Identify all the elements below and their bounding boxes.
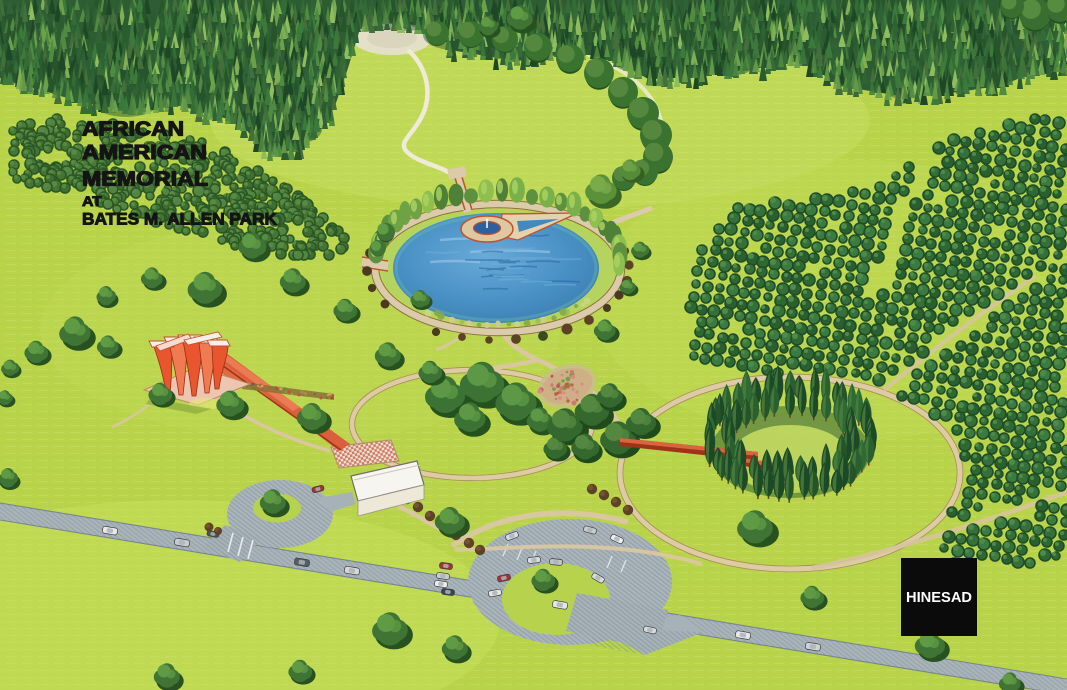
svg-text:AMERICAN: AMERICAN	[82, 142, 207, 164]
svg-text:BATES M. ALLEN PARK: BATES M. ALLEN PARK	[82, 210, 278, 229]
svg-text:AFRICAN: AFRICAN	[82, 119, 184, 141]
svg-text:AT: AT	[82, 193, 103, 209]
svg-text:HINESAD: HINESAD	[906, 589, 972, 606]
svg-text:MEMORIAL: MEMORIAL	[82, 169, 208, 191]
